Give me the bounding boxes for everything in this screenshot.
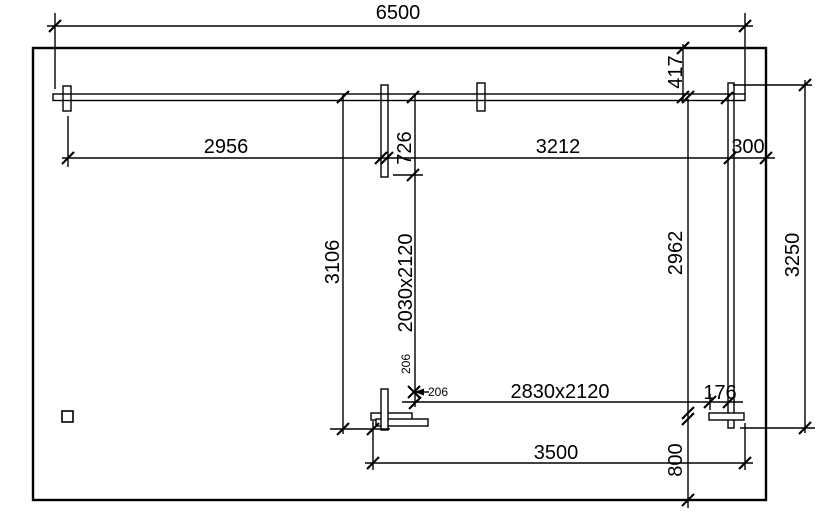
dimension-ticks [49, 20, 811, 506]
post-front-mid [477, 83, 485, 111]
label-side-door-size: 2030x2120 [395, 234, 417, 333]
label-mid-wall-offset: 726 [394, 131, 416, 164]
label-right-top-offset: 417 [665, 55, 687, 88]
post-bottom-right [709, 413, 744, 420]
label-rear-right-offset: 800 [665, 443, 687, 476]
label-left-depth: 3106 [322, 240, 344, 285]
floor-plan-drawing: 6500 2956 3212 300 417 726 3106 2030x212… [0, 0, 830, 512]
label-rear-door-size: 2830x2120 [511, 381, 610, 403]
front-beam [53, 94, 745, 101]
label-right-total-depth: 3250 [782, 233, 804, 278]
label-detail-offset-horizontal: 206 [428, 385, 448, 399]
wall-bottom-vert [381, 389, 388, 430]
wall-right [728, 83, 734, 428]
label-right-depth: 2962 [665, 231, 687, 276]
label-front-span-right: 300 [731, 136, 764, 158]
label-front-span-mid: 3212 [536, 136, 581, 158]
post-front-left [63, 86, 71, 111]
anchor-square [62, 411, 73, 422]
dimension-labels: 6500 2956 3212 300 417 726 3106 2030x212… [204, 2, 804, 477]
dimension-lines [47, 13, 815, 508]
label-detail-offset-vertical: 206 [399, 354, 413, 374]
label-rear-gap: 176 [703, 382, 736, 404]
plan-canvas: 6500 2956 3212 300 417 726 3106 2030x212… [0, 0, 830, 512]
label-rear-span: 3500 [534, 442, 579, 464]
label-front-span-left: 2956 [204, 136, 249, 158]
label-overall-width: 6500 [376, 2, 421, 24]
